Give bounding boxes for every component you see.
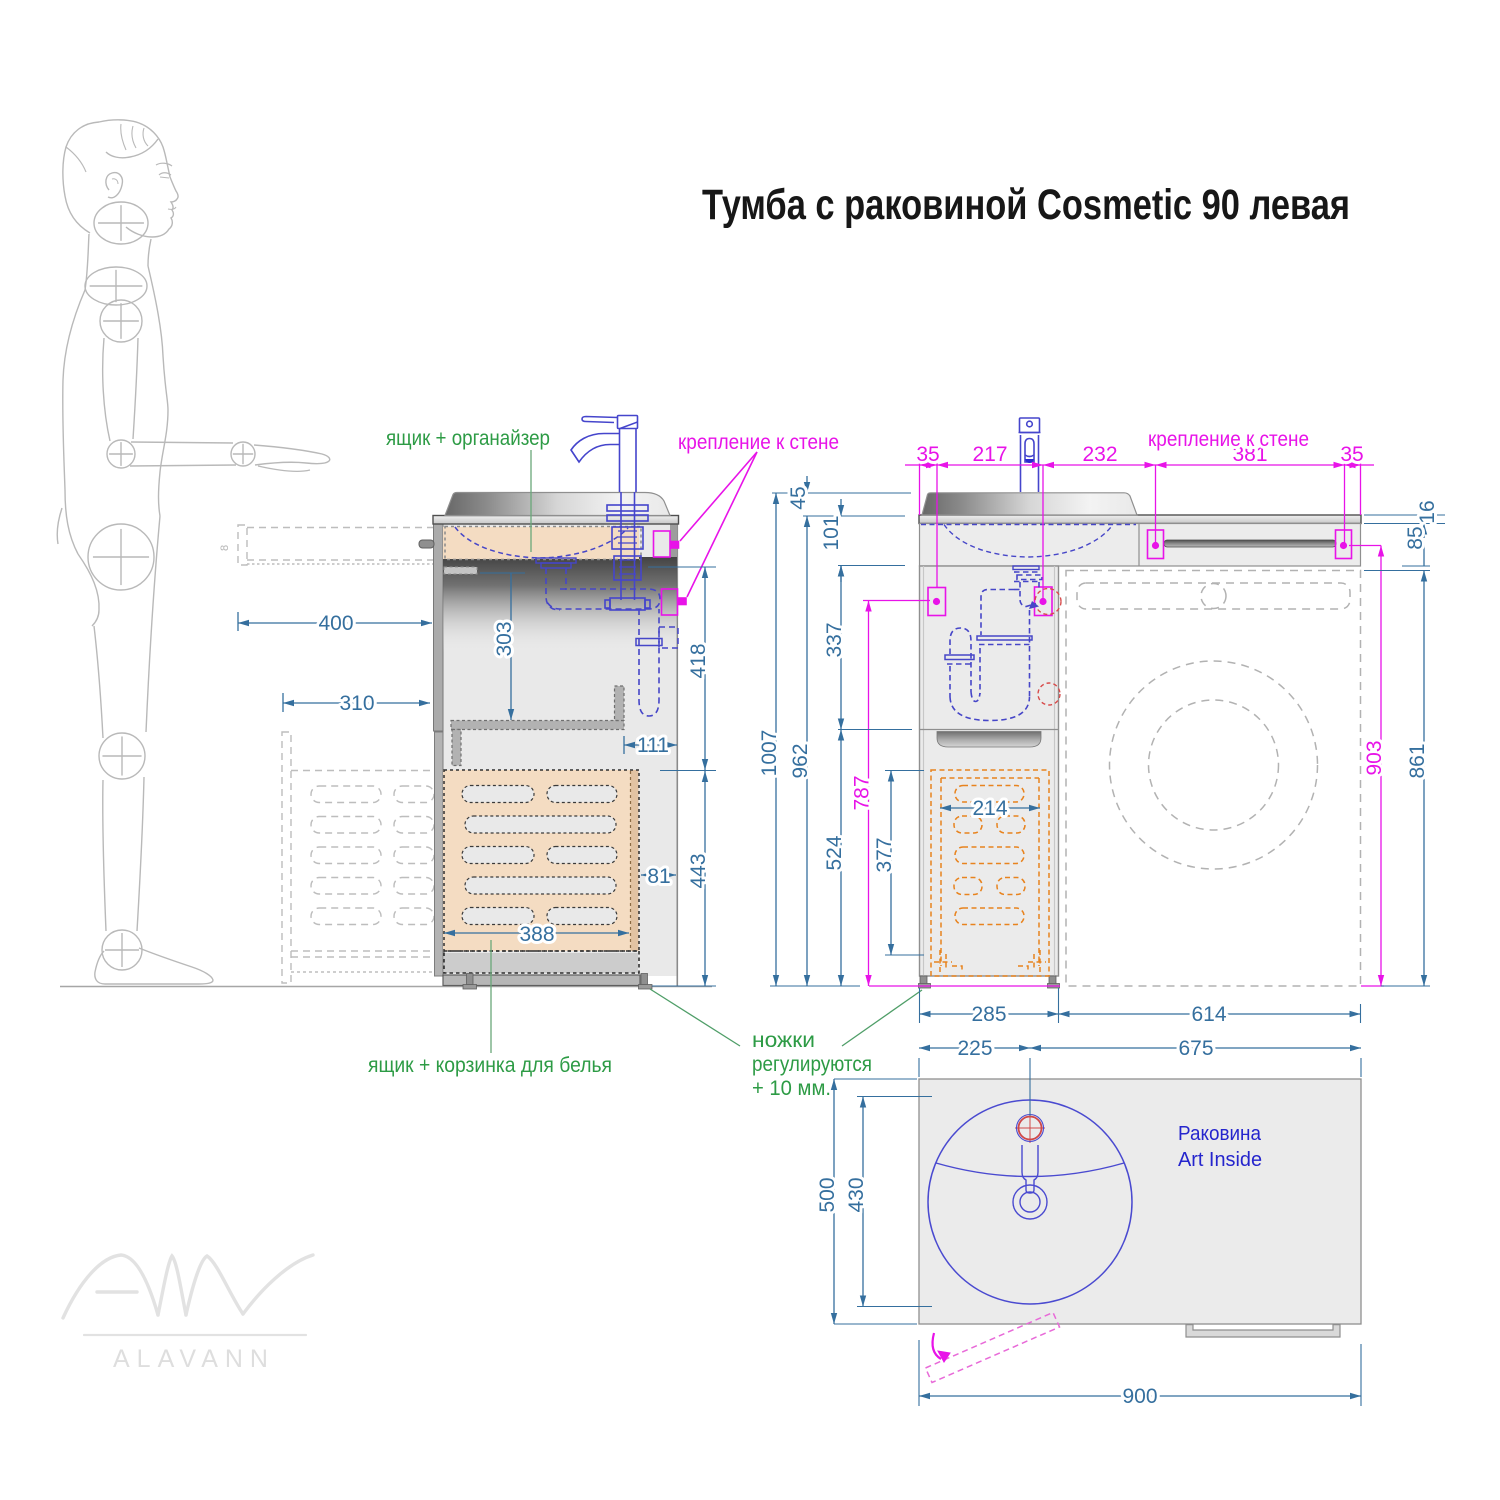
svg-text:500: 500 [816, 1177, 839, 1212]
svg-text:1007: 1007 [758, 730, 781, 777]
svg-text:крепление к стене: крепление к стене [1148, 428, 1309, 451]
svg-text:225: 225 [957, 1037, 992, 1060]
svg-text:443: 443 [687, 853, 710, 888]
svg-text:388: 388 [519, 923, 554, 946]
svg-text:крепление к стене: крепление к стене [678, 431, 839, 454]
svg-text:303: 303 [493, 621, 516, 656]
svg-text:35: 35 [1340, 443, 1363, 466]
svg-text:+ 10 мм.: + 10 мм. [752, 1077, 831, 1100]
svg-text:ящик + корзинка для белья: ящик + корзинка для белья [368, 1054, 612, 1077]
svg-text:962: 962 [789, 743, 812, 778]
svg-text:675: 675 [1178, 1037, 1213, 1060]
svg-text:ящик + органайзер: ящик + органайзер [386, 427, 550, 450]
svg-text:217: 217 [972, 443, 1007, 466]
svg-text:Тумба с раковиной Cosmetic 90: Тумба с раковиной Cosmetic 90 левая [702, 181, 1350, 229]
svg-text:регулируются: регулируются [752, 1053, 872, 1076]
svg-text:ALAVANN: ALAVANN [113, 1345, 275, 1373]
svg-text:35: 35 [916, 443, 939, 466]
svg-text:101: 101 [820, 515, 843, 550]
svg-text:85: 85 [1404, 526, 1427, 549]
svg-text:900: 900 [1122, 1385, 1157, 1408]
svg-text:787: 787 [851, 775, 874, 810]
svg-text:430: 430 [845, 1177, 868, 1212]
svg-text:111: 111 [637, 734, 669, 757]
svg-text:310: 310 [339, 692, 374, 715]
svg-text:8: 8 [219, 545, 231, 551]
svg-text:614: 614 [1191, 1003, 1226, 1026]
svg-text:232: 232 [1082, 443, 1117, 466]
svg-text:285: 285 [971, 1003, 1006, 1026]
svg-text:214: 214 [972, 797, 1007, 820]
svg-text:861: 861 [1406, 743, 1429, 778]
svg-text:337: 337 [823, 622, 846, 657]
svg-text:81: 81 [647, 865, 670, 888]
svg-text:418: 418 [687, 643, 710, 678]
svg-text:524: 524 [823, 835, 846, 870]
svg-text:377: 377 [873, 837, 896, 872]
svg-text:Art Inside: Art Inside [1178, 1149, 1262, 1171]
svg-text:16: 16 [1416, 500, 1439, 523]
svg-text:Раковина: Раковина [1178, 1123, 1262, 1145]
svg-text:ножки: ножки [752, 1029, 815, 1052]
svg-text:903: 903 [1363, 740, 1386, 775]
svg-text:45: 45 [787, 486, 810, 509]
svg-text:400: 400 [318, 612, 353, 635]
